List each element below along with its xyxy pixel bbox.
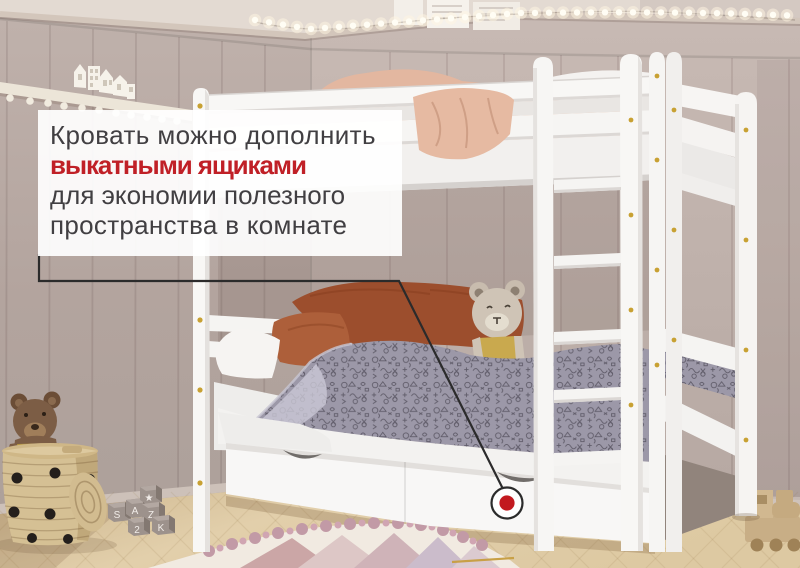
svg-text:2: 2 xyxy=(134,525,140,536)
svg-text:S: S xyxy=(114,510,121,521)
svg-text:K: K xyxy=(158,523,165,534)
svg-text:★: ★ xyxy=(145,493,154,504)
svg-text:A: A xyxy=(132,506,139,517)
